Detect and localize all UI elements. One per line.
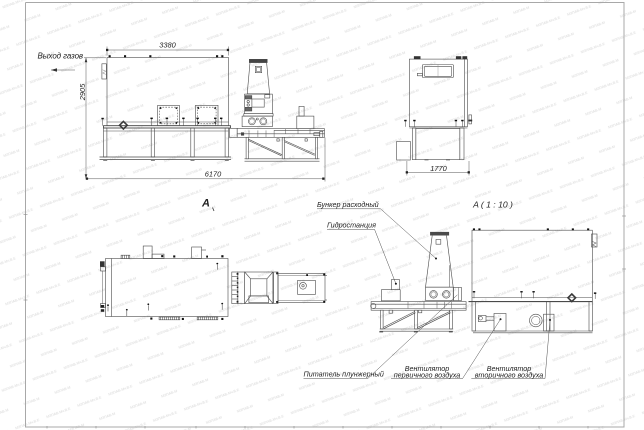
svg-text:первичного воздуха: первичного воздуха — [394, 371, 461, 380]
svg-text:Бункер расходный: Бункер расходный — [317, 200, 379, 209]
svg-text:2905: 2905 — [78, 83, 87, 101]
svg-text:A ( 1 : 10 ): A ( 1 : 10 ) — [472, 200, 513, 210]
svg-text:Питатель плунжерный: Питатель плунжерный — [304, 370, 384, 379]
svg-text:Гидростанция: Гидростанция — [327, 221, 376, 230]
svg-text:3380: 3380 — [159, 41, 176, 50]
svg-text:Выход газов: Выход газов — [38, 52, 84, 61]
svg-text:A: A — [201, 198, 210, 210]
svg-text:1770: 1770 — [430, 164, 447, 173]
svg-text:6170: 6170 — [205, 170, 222, 179]
svg-text:вторичного воздуха: вторичного воздуха — [475, 371, 543, 380]
